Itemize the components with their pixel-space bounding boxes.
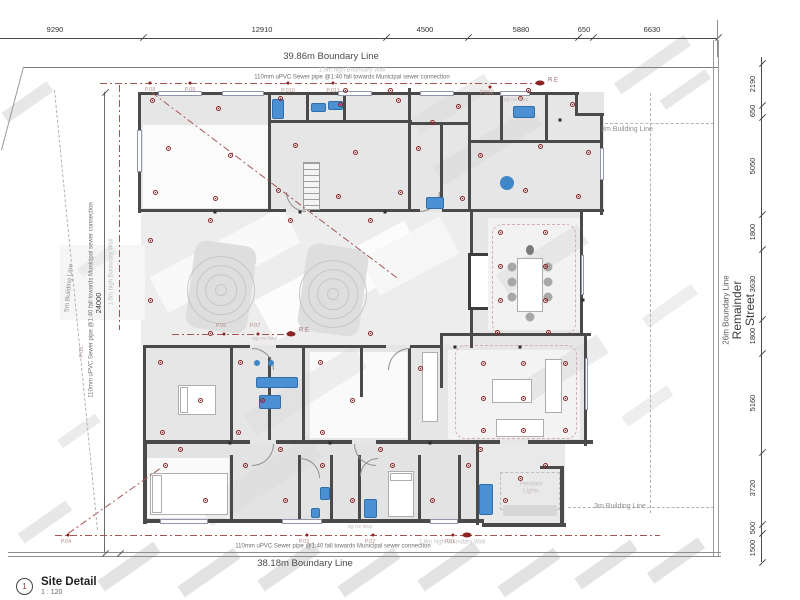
staircase: [303, 162, 320, 210]
ceiling-light-symbol: [178, 447, 183, 452]
ceiling-light-symbol: [478, 447, 483, 452]
dining-chair: [508, 278, 517, 287]
ceiling-light-symbol: [416, 146, 421, 151]
ceiling-light-symbol: [430, 498, 435, 503]
ceiling-light-symbol: [543, 463, 548, 468]
label-sewer-note-top: 110mm uPVC Sewer pipe @1:40 fall towards…: [254, 75, 449, 82]
ceiling-light-symbol: [153, 190, 158, 195]
drawing-title: Site Detail: [41, 576, 97, 588]
wall-segment: [440, 333, 591, 336]
plumbing-fixture-round: [268, 360, 274, 366]
site-plan-canvas: 1 Site Detail 1 : 120 929012910450058806…: [0, 0, 800, 600]
wall-segment: [580, 209, 604, 212]
boundary-line-right: [713, 40, 714, 557]
window: [581, 255, 584, 295]
plumbing-fixture: [426, 197, 444, 209]
ceiling-light-symbol: [166, 146, 171, 151]
ceiling-light-symbol: [526, 88, 531, 93]
sewer-pipe-line: [119, 85, 120, 330]
ceiling-light-symbol: [238, 360, 243, 365]
label-marker-p011: P.011: [326, 88, 339, 94]
ceiling-light-symbol: [543, 230, 548, 235]
rodding-eye: [287, 332, 296, 337]
window: [160, 519, 208, 524]
car-wheel-rings: [327, 288, 339, 300]
ceiling-light-symbol: [543, 298, 548, 303]
ceiling-light-symbol: [243, 463, 248, 468]
person-figure: [526, 245, 534, 255]
plumbing-fixture: [272, 99, 284, 119]
shading-sweep: [97, 542, 160, 592]
socket-symbol: [454, 346, 457, 349]
dimension-label: 1800: [749, 224, 757, 241]
wall-segment: [230, 455, 233, 521]
ceiling-light-symbol: [466, 463, 471, 468]
wall-segment: [560, 466, 564, 526]
dimension-label: 12910: [252, 26, 273, 34]
ceiling-light-symbol: [498, 298, 503, 303]
label-marker-p07: P.07: [250, 323, 261, 329]
plumbing-fixture-round: [254, 360, 260, 366]
ceiling-light-symbol: [478, 153, 483, 158]
wall-segment: [343, 92, 346, 123]
rodding-eye: [463, 533, 472, 538]
ceiling-light-symbol: [283, 498, 288, 503]
plumbing-fixture: [311, 103, 326, 112]
socket-symbol: [299, 211, 302, 214]
window: [222, 91, 264, 96]
sewer-inspection-point: [223, 333, 226, 336]
ceiling-light-symbol: [163, 463, 168, 468]
ceiling-light-symbol: [236, 430, 241, 435]
ceiling-light-symbol: [320, 463, 325, 468]
window: [282, 519, 322, 524]
plumbing-fixture: [364, 499, 377, 518]
label-marker-p08: P.08: [145, 87, 156, 93]
dimension-label: 1500: [749, 540, 757, 557]
ceiling-light-symbol: [430, 120, 435, 125]
ceiling-light-symbol: [350, 498, 355, 503]
ceiling-light-symbol: [378, 447, 383, 452]
sewer-inspection-point: [306, 534, 309, 537]
label-boundary-38: 38.18m Boundary Line: [257, 559, 353, 569]
ceiling-light-symbol: [495, 330, 500, 335]
label-marker-p03: P.03: [299, 539, 310, 545]
wall-segment: [545, 92, 548, 142]
dining-chair: [544, 278, 553, 287]
ceiling-light-symbol: [278, 96, 283, 101]
ceiling-light-symbol: [288, 218, 293, 223]
dimension-label: 650: [578, 26, 591, 34]
window: [137, 130, 142, 172]
wall-segment: [270, 120, 412, 123]
shading-sweep: [57, 414, 100, 449]
ceiling-light-symbol: [160, 430, 165, 435]
wall-segment: [230, 345, 233, 443]
label-marker-p04: P.04: [61, 539, 72, 545]
sewer-inspection-point: [149, 82, 152, 85]
ceiling-light-symbol: [368, 218, 373, 223]
ceiling-light-symbol: [320, 430, 325, 435]
dimension-label: 2190: [749, 76, 757, 93]
furniture: [390, 473, 412, 481]
wall-segment: [470, 212, 473, 256]
ceiling-light-symbol: [390, 463, 395, 468]
dimension-label: 5050: [749, 158, 757, 175]
socket-symbol: [214, 211, 217, 214]
dimension-line-left: [104, 92, 105, 553]
dining-chair: [508, 293, 517, 302]
ceiling-light-symbol: [563, 396, 568, 401]
furniture: [180, 387, 188, 413]
shading-sweep: [574, 540, 637, 590]
ceiling-light-symbol: [563, 361, 568, 366]
ceiling-light-symbol: [398, 190, 403, 195]
dimension-label: 6630: [644, 26, 661, 34]
ceiling-light-symbol: [353, 150, 358, 155]
dimension-label: 3720: [749, 480, 757, 497]
ceiling-light-symbol: [481, 428, 486, 433]
socket-symbol: [519, 346, 522, 349]
ceiling-light-symbol: [498, 230, 503, 235]
label-boundary-39: 39.86m Boundary Line: [283, 52, 379, 62]
ceiling-light-symbol: [538, 144, 543, 149]
furniture: [152, 475, 162, 513]
furniture: [517, 258, 543, 312]
wall-segment: [458, 455, 461, 521]
wall-segment: [268, 92, 271, 212]
wall-segment: [302, 345, 305, 443]
label-og-rw-dwp-3: og rw dwp: [503, 97, 528, 103]
label-street-name: Remainder Street: [731, 281, 757, 340]
wall-segment: [360, 345, 363, 397]
furniture: [496, 419, 544, 437]
dimension-label: 500: [749, 522, 757, 535]
ceiling-light-symbol: [350, 398, 355, 403]
window: [420, 91, 454, 96]
ceiling-light-symbol: [260, 398, 265, 403]
label-building-line-3m-top: 3m Building Line: [601, 126, 653, 134]
ceiling-light-symbol: [336, 194, 341, 199]
building-line: [650, 93, 651, 513]
wall-segment: [440, 333, 443, 388]
sewer-pipe-line: [100, 83, 536, 84]
wall-segment: [470, 308, 473, 348]
label-marker-p02: P.02: [365, 539, 376, 545]
ceiling-light-symbol: [481, 361, 486, 366]
ceiling-light-symbol: [456, 104, 461, 109]
wall-segment: [468, 140, 603, 143]
sewer-inspection-point: [372, 534, 375, 537]
ceiling-light-symbol: [518, 476, 523, 481]
ceiling-light-symbol: [148, 238, 153, 243]
boundary-line-bottom: [8, 552, 721, 553]
socket-symbol: [384, 211, 387, 214]
ceiling-light-symbol: [576, 194, 581, 199]
dimension-tick: [102, 89, 109, 96]
window: [430, 519, 458, 524]
label-og-rw-dwp-1: og rw dwp: [252, 336, 277, 342]
label-marker-p06: P.06: [216, 323, 227, 329]
wall-segment: [482, 523, 566, 527]
label-marker-p09: P.09: [185, 87, 196, 93]
shading-sweep: [660, 69, 711, 110]
drawing-scale: 1 : 120: [41, 589, 97, 596]
wall-segment: [468, 92, 471, 212]
ceiling-light-symbol: [563, 428, 568, 433]
boundary-line-right: [718, 40, 719, 557]
label-dim-24000: 24000: [95, 293, 103, 314]
ceiling-light-symbol: [460, 196, 465, 201]
wall-segment: [143, 440, 147, 524]
ceiling-light-symbol: [318, 360, 323, 365]
shading-sweep: [18, 500, 72, 543]
ceiling-light-symbol: [521, 428, 526, 433]
sewer-inspection-point: [489, 86, 492, 89]
wall-segment: [358, 455, 361, 521]
dining-chair: [508, 263, 517, 272]
label-marker-p05: P.05: [79, 347, 85, 358]
socket-symbol: [329, 442, 332, 445]
shading-sweep: [614, 35, 691, 94]
ceiling-light-symbol: [523, 188, 528, 193]
title-block: 1 Site Detail 1 : 120: [16, 576, 97, 596]
wall-segment: [143, 345, 146, 444]
plumbing-fixture: [513, 106, 535, 118]
window: [585, 358, 588, 410]
window: [600, 148, 604, 180]
plumbing-fixture: [311, 508, 320, 518]
furniture: [545, 359, 562, 413]
socket-symbol: [229, 442, 232, 445]
ceiling-light-symbol: [481, 396, 486, 401]
socket-symbol: [582, 299, 585, 302]
sewer-inspection-point: [67, 534, 70, 537]
label-wall-note-top: 1.8m high Boundary Wall: [319, 68, 386, 75]
label-wall-note-left: 1.8m high Boundary Wall: [109, 239, 116, 306]
sewer-inspection-point: [452, 534, 455, 537]
ceiling-light-symbol: [418, 366, 423, 371]
wall-segment: [408, 122, 468, 125]
label-marker-p012: P.012: [480, 90, 494, 96]
sewer-pipe-line: [55, 535, 660, 536]
ceiling-light-symbol: [543, 264, 548, 269]
patio-bench: [520, 507, 550, 514]
window: [158, 91, 202, 96]
door-opening: [500, 440, 528, 444]
ceiling-light-symbol: [521, 361, 526, 366]
ceiling-light-symbol: [546, 330, 551, 335]
dimension-label: 5880: [513, 26, 530, 34]
ceiling-light-symbol: [586, 150, 591, 155]
sewer-inspection-point: [189, 82, 192, 85]
ceiling-light-symbol: [216, 106, 221, 111]
label-sewer-note-bottom: 110mm uPVC Sewer pipe @1:40 fall towards…: [235, 544, 430, 551]
dimension-label: 4500: [417, 26, 434, 34]
wall-segment: [306, 92, 309, 123]
ceiling-light-symbol: [343, 88, 348, 93]
ceiling-light-symbol: [388, 88, 393, 93]
furniture: [492, 379, 532, 403]
dimension-label: 650: [749, 105, 757, 118]
plumbing-fixture: [256, 377, 298, 388]
extension-line: [717, 20, 718, 57]
ceiling-light-symbol: [396, 98, 401, 103]
dimension-label: 9290: [47, 26, 64, 34]
dimension-line-top: [0, 38, 718, 39]
wall-segment: [330, 455, 333, 521]
socket-symbol: [429, 442, 432, 445]
plumbing-fixture: [320, 487, 330, 500]
ceiling-light-symbol: [213, 196, 218, 201]
plumbing-fixture: [479, 484, 493, 515]
rodding-eye: [536, 81, 545, 86]
dimension-label: 5160: [749, 395, 757, 412]
ceiling-light-symbol: [368, 331, 373, 336]
ceiling-light-symbol: [278, 447, 283, 452]
shading-sweep: [622, 385, 674, 426]
furniture: [422, 352, 438, 422]
sewer-inspection-point: [332, 82, 335, 85]
label-marker-re-mid: R.E: [299, 328, 309, 335]
ceiling-light-symbol: [150, 98, 155, 103]
ceiling-light-symbol: [338, 102, 343, 107]
label-marker-re-top: R.E: [548, 78, 558, 85]
ceiling-light-symbol: [148, 298, 153, 303]
fireplace: [468, 253, 488, 310]
car-wheel-rings: [215, 284, 227, 296]
socket-symbol: [559, 119, 562, 122]
boundary-line-bottom: [8, 556, 721, 557]
ceiling-light-symbol: [203, 498, 208, 503]
ceiling-light-symbol: [208, 218, 213, 223]
ceiling-light-symbol: [503, 498, 508, 503]
wall-segment: [408, 88, 411, 212]
detail-number: 1: [22, 582, 26, 591]
building-line: [605, 123, 714, 124]
sewer-inspection-point: [287, 82, 290, 85]
ceiling-light-symbol: [293, 143, 298, 148]
sewer-pipe-line: [172, 334, 288, 335]
dining-chair: [526, 313, 535, 322]
dimension-line-right: [761, 57, 762, 562]
shading-sweep: [647, 537, 705, 583]
label-building-line-3m-bottom: 3m Building Line: [594, 503, 646, 511]
ceiling-light-symbol: [158, 360, 163, 365]
label-og-rw-dwp-2: og rw dwp: [347, 524, 372, 530]
wall-segment: [418, 455, 421, 521]
ceiling-light-symbol: [198, 398, 203, 403]
ceiling-light-symbol: [521, 396, 526, 401]
label-marker-p010: P.010: [281, 88, 295, 94]
plumbing-fixture-round: [500, 176, 514, 190]
label-pendant-lights: Pendant Lights: [520, 481, 542, 494]
label-marker-p01: P.01: [445, 539, 456, 545]
detail-number-badge: 1: [16, 578, 33, 595]
ceiling-light-symbol: [570, 102, 575, 107]
ceiling-light-symbol: [498, 264, 503, 269]
